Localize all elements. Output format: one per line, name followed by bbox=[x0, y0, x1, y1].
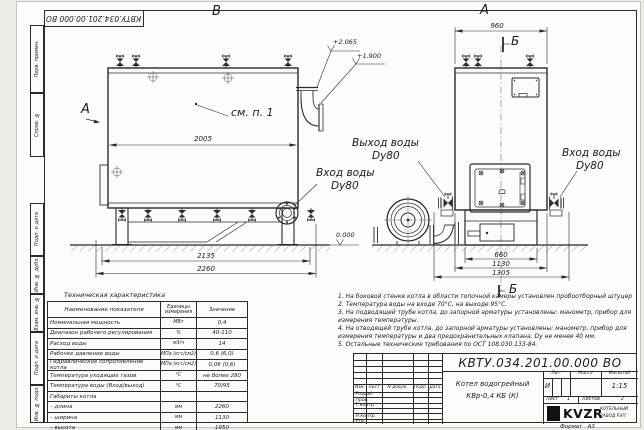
tb-sheet-value: 1 bbox=[567, 398, 570, 403]
spec-header-row: Наименование показателя Единицы измерени… bbox=[48, 302, 247, 317]
spec-cell-name: Гидравлическое сопротивление котла bbox=[48, 360, 161, 370]
spec-cell-name: – ширина bbox=[48, 413, 161, 423]
tb-line bbox=[354, 360, 442, 361]
dim-960: 960 bbox=[490, 23, 503, 30]
tb-line bbox=[578, 396, 579, 403]
spec-cell-value: 0,4 bbox=[197, 318, 247, 328]
spec-cell-value: 14 bbox=[197, 339, 247, 349]
spec-col-units: Единицы измерения bbox=[161, 302, 197, 317]
note-item: 3. На подводящей трубе котла, до запорно… bbox=[338, 309, 636, 325]
tb-col-sign: Подп. bbox=[413, 386, 428, 390]
spec-table-title: Техническая характеристика bbox=[64, 292, 165, 299]
elevation-0000: 0.000 bbox=[336, 232, 355, 239]
label-outlet: Выход воды bbox=[352, 138, 419, 149]
spec-cell-value: не более 280 bbox=[197, 371, 247, 381]
spec-cell-value: 1130 bbox=[197, 413, 247, 423]
spec-cell-value: 0,06 (0,6) bbox=[197, 360, 247, 370]
label-inlet-dn: Dу80 bbox=[576, 161, 604, 172]
technical-notes: 1. На боковой стенке котла в области топ… bbox=[338, 293, 636, 349]
spec-cell-units: мм bbox=[161, 402, 197, 412]
title-block: Изм. Лист N докум. Подп. Дата Разраб. Пр… bbox=[353, 353, 637, 423]
tb-sheet-label: Лист bbox=[546, 398, 558, 403]
spec-row: Расход водым3/ч14 bbox=[48, 338, 247, 349]
tb-lit-label: Лит. bbox=[543, 372, 570, 377]
spec-cell-units: °С bbox=[161, 371, 197, 381]
spec-cell-name: – высота bbox=[48, 423, 161, 430]
spec-cell-name: Номинальная мощность bbox=[48, 318, 161, 328]
company-logo-mark bbox=[547, 406, 560, 421]
spec-cell-name: Расход воды bbox=[48, 339, 161, 349]
note-item: 4. На отводящей трубе котла, до запорной… bbox=[338, 325, 636, 341]
drawing-sheet: КВТУ.034.201.00.000 ВО Перв. примен. Спр… bbox=[0, 0, 644, 430]
label-outlet-dn: Dу80 bbox=[372, 151, 400, 162]
spec-cell-value: 1950 bbox=[197, 423, 247, 430]
company-logo: KVZR bbox=[563, 406, 603, 421]
tb-doc-number: КВТУ.034.201.00.000 ВО bbox=[444, 357, 636, 369]
spec-cell-value: 0,6 (6,0) bbox=[197, 350, 247, 360]
spec-cell-name: Рабочее давление воды bbox=[48, 350, 161, 360]
tb-line bbox=[561, 378, 562, 396]
tb-sheets-label: Листов bbox=[582, 398, 600, 403]
spec-cell-name: Диапазон рабочего регулирования bbox=[48, 329, 161, 339]
spec-cell-units bbox=[161, 392, 197, 402]
spec-cell-value: 2260 bbox=[197, 402, 247, 412]
elevation-2065: +2.065 bbox=[333, 39, 357, 46]
tb-product-line2: КВр-0,4 КБ (К) bbox=[442, 393, 543, 400]
spec-col-units-line2: измерения bbox=[165, 310, 192, 315]
tb-scale-label: Масштаб bbox=[601, 372, 638, 377]
tb-company-line2: ЗАВОД РЭП bbox=[600, 415, 626, 419]
spec-col-name: Наименование показателя bbox=[48, 302, 161, 317]
spec-row: Номинальная мощностьМВт0,4 bbox=[48, 317, 247, 328]
spec-cell-units: % bbox=[161, 329, 197, 339]
spec-table: Наименование показателя Единицы измерени… bbox=[47, 301, 248, 423]
spec-col-value: Значение bbox=[197, 302, 247, 317]
spec-row: – длинамм2260 bbox=[48, 401, 247, 412]
section-letter-b: Б bbox=[511, 35, 519, 47]
spec-cell-units: МПа (кгс/см2) bbox=[161, 360, 197, 370]
spec-cell-units: м3/ч bbox=[161, 339, 197, 349]
dim-1305: 1305 bbox=[492, 270, 510, 277]
tb-col-date: Дата bbox=[428, 386, 442, 390]
spec-cell-value bbox=[197, 392, 247, 402]
spec-cell-name: Габариты котла bbox=[48, 392, 161, 402]
tb-scale-value: 1:15 bbox=[601, 383, 638, 390]
spec-cell-units: МВт bbox=[161, 318, 197, 328]
tb-mass-label: Масса bbox=[570, 372, 601, 377]
spec-row: Температура уходящих газов°Сне более 280 bbox=[48, 370, 247, 381]
tb-col-list: Лист bbox=[366, 386, 382, 390]
note-item: 2. Температура воды на входе 70°С, на вы… bbox=[338, 301, 636, 309]
dim-1130: 1130 bbox=[492, 261, 510, 268]
tb-company-line1: КОТЕЛЬНЫЙ bbox=[600, 408, 628, 412]
dim-2260: 2260 bbox=[197, 266, 215, 273]
format-note: Формат А3 bbox=[560, 424, 595, 430]
format-label: Формат bbox=[560, 424, 582, 430]
left-view-drawing bbox=[70, 46, 385, 278]
elevation-1900: +1.900 bbox=[357, 53, 381, 60]
spec-row: Рабочее давление водыМПа (кгс/см2)0,6 (6… bbox=[48, 349, 247, 360]
view-label-v: В bbox=[212, 5, 221, 18]
label-inlet-left-view: Вход воды bbox=[316, 168, 375, 179]
spec-cell-value: 40-110 bbox=[197, 329, 247, 339]
spec-cell-name: Температура уходящих газов bbox=[48, 371, 161, 381]
note-item: 1. На боковой стенке котла в области топ… bbox=[338, 293, 636, 301]
tb-col-doc: N докум. bbox=[382, 386, 413, 390]
tb-line bbox=[354, 378, 442, 379]
spec-row: – ширинамм1130 bbox=[48, 412, 247, 423]
spec-cell-name: Температура воды (Вход/выход) bbox=[48, 381, 161, 391]
spec-row: Габариты котла bbox=[48, 391, 247, 402]
spec-cell-value: 70/95 bbox=[197, 381, 247, 391]
dim-660: 660 bbox=[494, 252, 507, 259]
label-inlet: Вход воды bbox=[562, 148, 621, 159]
tb-line bbox=[354, 372, 442, 373]
right-view-drawing bbox=[372, 27, 588, 297]
tb-product-line1: Котел водогрейный bbox=[442, 381, 543, 388]
tb-lit-value: И bbox=[543, 383, 552, 390]
dim-2135: 2135 bbox=[197, 253, 215, 260]
format-value: А3 bbox=[588, 424, 595, 430]
dim-2005: 2005 bbox=[194, 136, 212, 143]
tb-line bbox=[552, 378, 553, 396]
spec-cell-units: мм bbox=[161, 413, 197, 423]
spec-row: Диапазон рабочего регулирования%40-110 bbox=[48, 328, 247, 339]
note-item: 5. Остальные технические требования по О… bbox=[338, 341, 636, 349]
spec-cell-units: МПа (кгс/см2) bbox=[161, 350, 197, 360]
callout-see-item: см. п. 1 bbox=[231, 107, 274, 118]
spec-row: Гидравлическое сопротивление котлаМПа (к… bbox=[48, 359, 247, 370]
view-label-a: А bbox=[480, 4, 489, 17]
spec-cell-name: – длина bbox=[48, 402, 161, 412]
spec-cell-units: °С bbox=[161, 381, 197, 391]
tb-line bbox=[543, 403, 638, 404]
view-direction-a: А bbox=[81, 103, 90, 116]
label-inlet-dn-left-view: Dу80 bbox=[331, 181, 359, 192]
spec-row: – высотамм1950 bbox=[48, 422, 247, 430]
spec-row: Температура воды (Вход/выход)°С70/95 bbox=[48, 380, 247, 391]
spec-cell-units: мм bbox=[161, 423, 197, 430]
tb-row-tkontr: Т.контр. bbox=[356, 404, 376, 409]
tb-row-utv: Утв. bbox=[356, 420, 366, 425]
tb-sheets-value: 2 bbox=[621, 398, 624, 403]
tb-line bbox=[354, 366, 442, 367]
tb-line bbox=[543, 378, 638, 379]
tb-col-izm: Изм. bbox=[354, 386, 366, 390]
